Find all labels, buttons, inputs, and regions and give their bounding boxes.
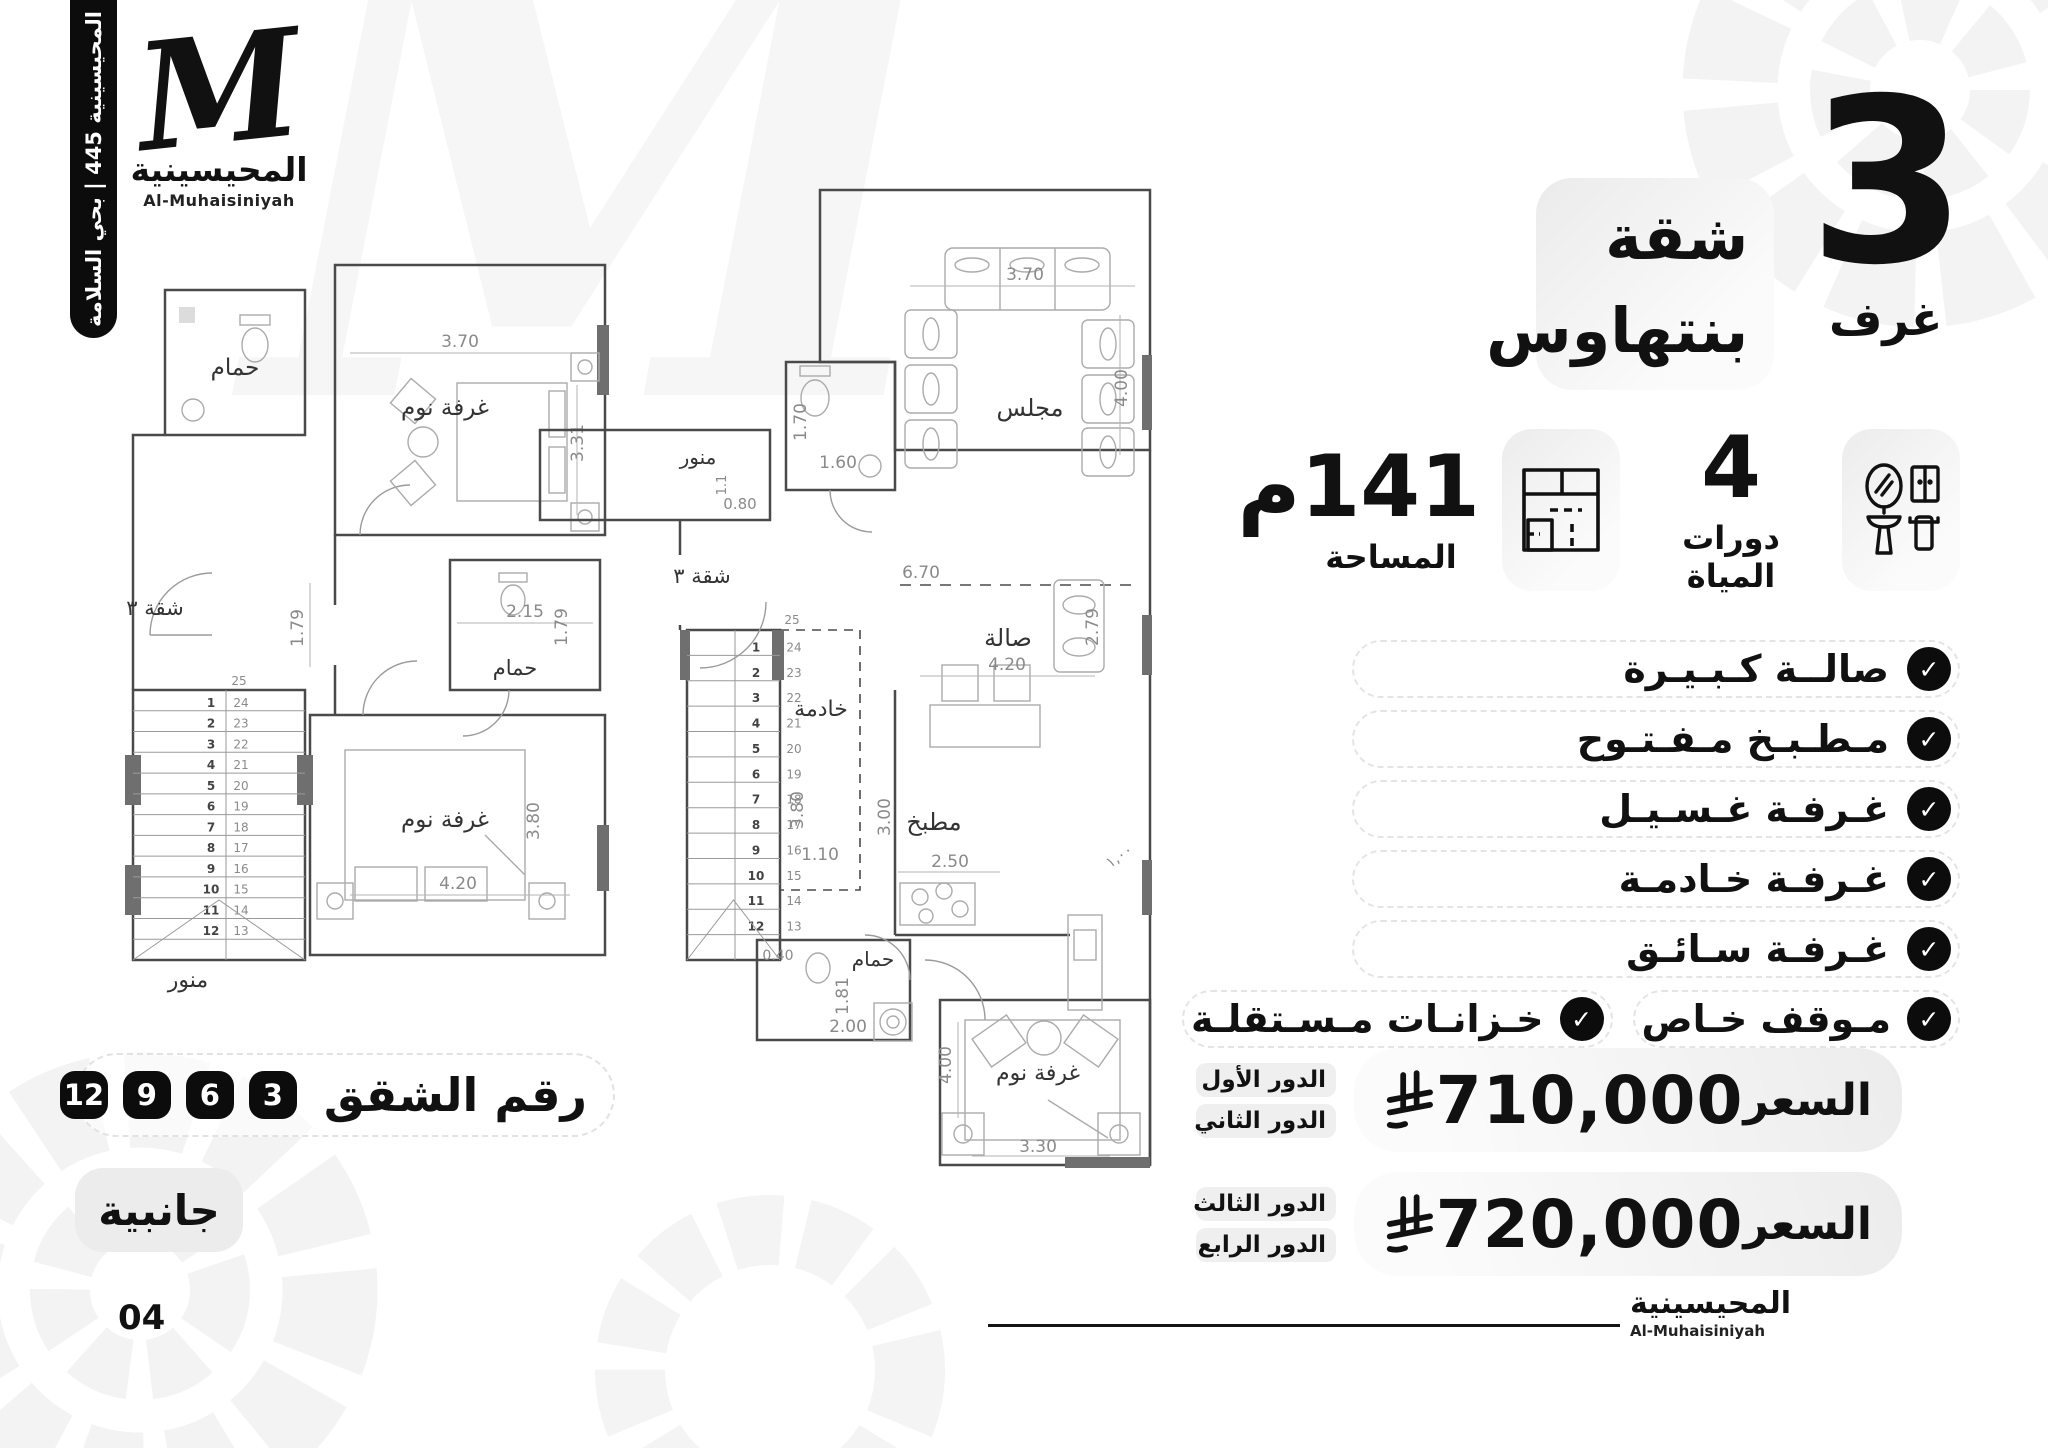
dim-majlis-width: 3.70 xyxy=(1006,265,1044,285)
dim-kitchen-height: 3.00 xyxy=(875,798,895,836)
svg-text:6: 6 xyxy=(752,767,760,781)
feature-pill-tanks: ✓ خـزانـات مـسـتقلـة xyxy=(1182,990,1613,1048)
bathrooms-icon-card xyxy=(1842,429,1960,591)
svg-text:24: 24 xyxy=(786,640,801,654)
floor-plan-upper-level: 3.70 4.00 6.70 4.20 2.79 1.70 1.60 1.1 0… xyxy=(530,160,1160,1205)
check-icon: ✓ xyxy=(1907,997,1951,1041)
bathrooms-count: 4 xyxy=(1642,425,1820,511)
room-label-bath-bottom: حمام xyxy=(852,947,894,971)
riyal-symbol-icon xyxy=(1384,1194,1436,1254)
area-value: 141م xyxy=(1302,444,1480,530)
footer-brand-en: Al-Muhaisiniyah xyxy=(1630,1322,1791,1340)
price-pill-1: السعر 710,000 xyxy=(1354,1048,1902,1152)
svg-text:21: 21 xyxy=(786,717,801,731)
price-amount: 710,000 xyxy=(1436,1062,1744,1139)
svg-text:14: 14 xyxy=(786,894,801,908)
check-icon: ✓ xyxy=(1907,857,1951,901)
project-side-tag: المحيسينية 445 | بحي السلامة xyxy=(70,0,117,338)
dim-bath-top-width: 1.60 xyxy=(819,453,857,473)
dim-hall-height: 2.79 xyxy=(1083,608,1103,646)
bathrooms-stat: 4 دورات المياة xyxy=(1642,425,1820,595)
floor-tag: الدور الأول xyxy=(1196,1063,1336,1097)
floor-tag: الدور الثاني xyxy=(1196,1104,1336,1138)
check-icon: ✓ xyxy=(1907,787,1951,831)
dim-hall-width: 4.20 xyxy=(988,655,1026,675)
logo-monogram: M xyxy=(117,6,321,173)
svg-text:3: 3 xyxy=(207,737,215,751)
staircase: 1242233224215206197188179161015111412132… xyxy=(687,613,802,960)
unit-type-card: شقة بنتهاوس xyxy=(1536,178,1774,390)
floor-tags-1: الدور الأول الدور الثاني xyxy=(1196,1063,1336,1138)
svg-text:22: 22 xyxy=(786,691,801,705)
doors xyxy=(150,485,509,736)
dim-lightwell-height: 1.1 xyxy=(715,475,730,496)
apartment-entry-label: شقة ٣ xyxy=(126,596,183,620)
svg-text:1: 1 xyxy=(207,696,215,710)
project-side-tag-text: المحيسينية 445 | بحي السلامة xyxy=(82,11,106,327)
features-list: ✓ صالــة كـبـيـرة ✓ مـطـبـخ مـفـتـوح ✓ غ… xyxy=(1352,640,1960,1048)
floorplan-icon xyxy=(1520,464,1602,556)
svg-text:19: 19 xyxy=(786,767,801,781)
svg-text:22: 22 xyxy=(233,737,248,751)
footer-brand: المحيسينية Al-Muhaisiniyah xyxy=(1630,1286,1791,1340)
apartment-number: 12 xyxy=(60,1071,108,1119)
svg-text:20: 20 xyxy=(786,742,801,756)
dim-bed-bottom-width: 4.20 xyxy=(439,874,477,894)
price-row-2: السعر 720,000 الدور الثالث الدور الرابع xyxy=(1196,1172,1902,1276)
feature-row-laundry: ✓ غـرفـة غـسـيـل xyxy=(1352,780,1960,838)
wall-piers xyxy=(680,355,1152,1168)
orientation-badge: جانبية xyxy=(75,1168,243,1252)
dim-bath-top-height: 1.70 xyxy=(791,403,811,441)
svg-text:4: 4 xyxy=(752,717,760,731)
check-icon: ✓ xyxy=(1907,647,1951,691)
svg-text:16: 16 xyxy=(233,862,248,876)
feature-label: غـرفـة خـادمـة xyxy=(1619,857,1889,901)
apartment-numbers: رقم الشقق 3 6 9 12 xyxy=(75,1053,615,1137)
bathroom-icon xyxy=(1858,462,1944,558)
unit-type-line1: شقة xyxy=(1542,191,1748,284)
room-label-bed-bottom: غرفة نوم xyxy=(401,807,489,833)
brochure-page: M المحيسينية 445 | بحي السلامة M المحيسي… xyxy=(0,0,2048,1448)
riyal-symbol-icon xyxy=(1384,1070,1436,1130)
floor-tags-2: الدور الثالث الدور الرابع xyxy=(1196,1187,1336,1262)
price-label: السعر xyxy=(1743,1199,1872,1250)
svg-text:10: 10 xyxy=(203,883,220,897)
footer-brand-ar: المحيسينية xyxy=(1630,1286,1791,1321)
svg-text:10: 10 xyxy=(748,869,765,883)
svg-text:13: 13 xyxy=(786,920,801,934)
svg-text:19: 19 xyxy=(233,800,248,814)
area-icon-card xyxy=(1502,429,1620,591)
feature-pill-parking: ✓ مـوقف خـاص xyxy=(1633,990,1960,1048)
unit-stats: 4 دورات المياة 141م المساحة xyxy=(1302,425,1960,595)
dim-bath-bottom-width: 2.00 xyxy=(829,1017,867,1037)
price-pill-2: السعر 720,000 xyxy=(1354,1172,1902,1276)
check-icon: ✓ xyxy=(1907,717,1951,761)
svg-text:16: 16 xyxy=(786,843,801,857)
feature-label: مـوقف خـاص xyxy=(1642,997,1891,1041)
area-stat: 141م المساحة xyxy=(1302,444,1480,576)
price-label: السعر xyxy=(1743,1075,1872,1126)
feature-row-driver: ✓ غـرفـة سـائـق xyxy=(1352,920,1960,978)
brand-logo: M المحيسينية Al-Muhaisiniyah xyxy=(124,16,314,210)
dim-bath-bottom-height: 1.81 xyxy=(833,977,853,1015)
svg-text:12: 12 xyxy=(203,924,220,938)
area-label: المساحة xyxy=(1302,538,1480,576)
svg-text:4: 4 xyxy=(207,758,215,772)
page-number: 04 xyxy=(118,1298,165,1338)
rooms-count: 3 xyxy=(1808,78,1963,288)
dim-majlis-height: 4.00 xyxy=(1112,369,1132,407)
brand-name-en: Al-Muhaisiniyah xyxy=(124,191,314,210)
dim-lightwell-width: 0.80 xyxy=(723,495,756,513)
svg-text:17: 17 xyxy=(786,818,801,832)
floor-tag: الدور الرابع xyxy=(1196,1228,1336,1262)
svg-text:25: 25 xyxy=(231,674,246,688)
dim-hall-door: ١,٠٠ xyxy=(1102,840,1136,871)
feature-label: غـرفـة سـائـق xyxy=(1626,927,1889,971)
svg-text:24: 24 xyxy=(233,696,248,710)
svg-text:20: 20 xyxy=(233,779,248,793)
check-icon: ✓ xyxy=(1560,997,1604,1041)
svg-text:21: 21 xyxy=(233,758,248,772)
room-label-kitchen: مطبخ xyxy=(906,808,961,836)
svg-text:3: 3 xyxy=(752,691,760,705)
room-label-bath-top: حمام xyxy=(211,355,260,381)
price-row-1: السعر 710,000 الدور الأول الدور الثاني xyxy=(1196,1048,1902,1152)
svg-text:17: 17 xyxy=(233,841,248,855)
dim-bath-bottom-x: 0.40 xyxy=(762,948,793,964)
feature-row-parking-tanks: ✓ مـوقف خـاص ✓ خـزانـات مـسـتقلـة xyxy=(1352,990,1960,1048)
svg-text:8: 8 xyxy=(752,818,760,832)
svg-text:23: 23 xyxy=(233,717,248,731)
price-amount: 720,000 xyxy=(1436,1186,1744,1263)
check-icon: ✓ xyxy=(1907,927,1951,971)
apartment-entry-label: شقة ٣ xyxy=(673,564,730,588)
feature-row-maid: ✓ غـرفـة خـادمـة xyxy=(1352,850,1960,908)
feature-label: مـطـبـخ مـفـتـوح xyxy=(1577,717,1889,761)
room-label-majlis: مجلس xyxy=(997,394,1064,422)
svg-text:11: 11 xyxy=(748,894,765,908)
unit-header: 3 غرف شقة بنتهاوس xyxy=(1536,78,1963,390)
svg-text:9: 9 xyxy=(207,862,215,876)
lightwell-label: منور xyxy=(167,968,208,993)
prices-section: السعر 710,000 الدور الأول الدور الثاني ا… xyxy=(1196,1048,1902,1276)
feature-row-hall: ✓ صالــة كـبـيـرة xyxy=(1352,640,1960,698)
svg-text:18: 18 xyxy=(233,820,248,834)
footer-rule xyxy=(988,1324,1620,1327)
apartment-number: 3 xyxy=(249,1071,297,1119)
feature-label: غـرفـة غـسـيـل xyxy=(1599,787,1889,831)
room-label-hall: صالة xyxy=(984,624,1032,652)
svg-text:23: 23 xyxy=(786,666,801,680)
svg-text:13: 13 xyxy=(233,924,248,938)
svg-text:6: 6 xyxy=(207,800,215,814)
feature-row-kitchen: ✓ مـطـبـخ مـفـتـوح xyxy=(1352,710,1960,768)
svg-text:9: 9 xyxy=(752,843,760,857)
room-label-bed-top: غرفة نوم xyxy=(401,395,489,421)
floor-tag: الدور الثالث xyxy=(1196,1187,1336,1221)
unit-type-line2: بنتهاوس xyxy=(1542,284,1748,377)
dim-bed-bottom-width: 3.30 xyxy=(1019,1137,1057,1157)
dim-kitchen-width: 2.50 xyxy=(931,852,969,872)
bathrooms-label: دورات المياة xyxy=(1642,519,1820,595)
svg-text:25: 25 xyxy=(784,613,799,627)
rooms-word: غرف xyxy=(1829,292,1942,346)
dim-bed-bottom-height: 4.00 xyxy=(936,1046,956,1084)
staircase: 1242233224215206197188179161015111412132… xyxy=(133,674,305,960)
apartment-numbers-label: رقم الشقق xyxy=(324,1068,587,1122)
svg-text:7: 7 xyxy=(752,793,760,807)
room-label-maid: خادمة xyxy=(794,697,848,722)
dim-bed-top-width: 3.70 xyxy=(441,332,479,352)
dimension-texts: 3.70 4.00 6.70 4.20 2.79 1.70 1.60 1.1 0… xyxy=(715,265,1136,1157)
lightwell-label: منور xyxy=(679,445,717,469)
rooms-count-block: 3 غرف xyxy=(1808,78,1963,390)
dim-maid-width: 1.10 xyxy=(801,845,839,865)
feature-label: خـزانـات مـسـتقلـة xyxy=(1191,997,1544,1041)
svg-text:18: 18 xyxy=(786,793,801,807)
room-label-bed-bottom: غرفة نوم xyxy=(996,1061,1080,1086)
svg-text:2: 2 xyxy=(752,666,760,680)
svg-text:1: 1 xyxy=(752,640,760,654)
feature-label: صالــة كـبـيـرة xyxy=(1623,647,1889,691)
dim-corridor-left: 1.79 xyxy=(288,609,308,647)
apartment-number: 6 xyxy=(186,1071,234,1119)
svg-text:5: 5 xyxy=(207,779,215,793)
svg-text:15: 15 xyxy=(233,883,248,897)
svg-text:2: 2 xyxy=(207,717,215,731)
dim-hall-top: 6.70 xyxy=(902,563,940,583)
apartment-number: 9 xyxy=(123,1071,171,1119)
svg-text:8: 8 xyxy=(207,841,215,855)
svg-text:7: 7 xyxy=(207,820,215,834)
svg-text:15: 15 xyxy=(786,869,801,883)
svg-text:5: 5 xyxy=(752,742,760,756)
